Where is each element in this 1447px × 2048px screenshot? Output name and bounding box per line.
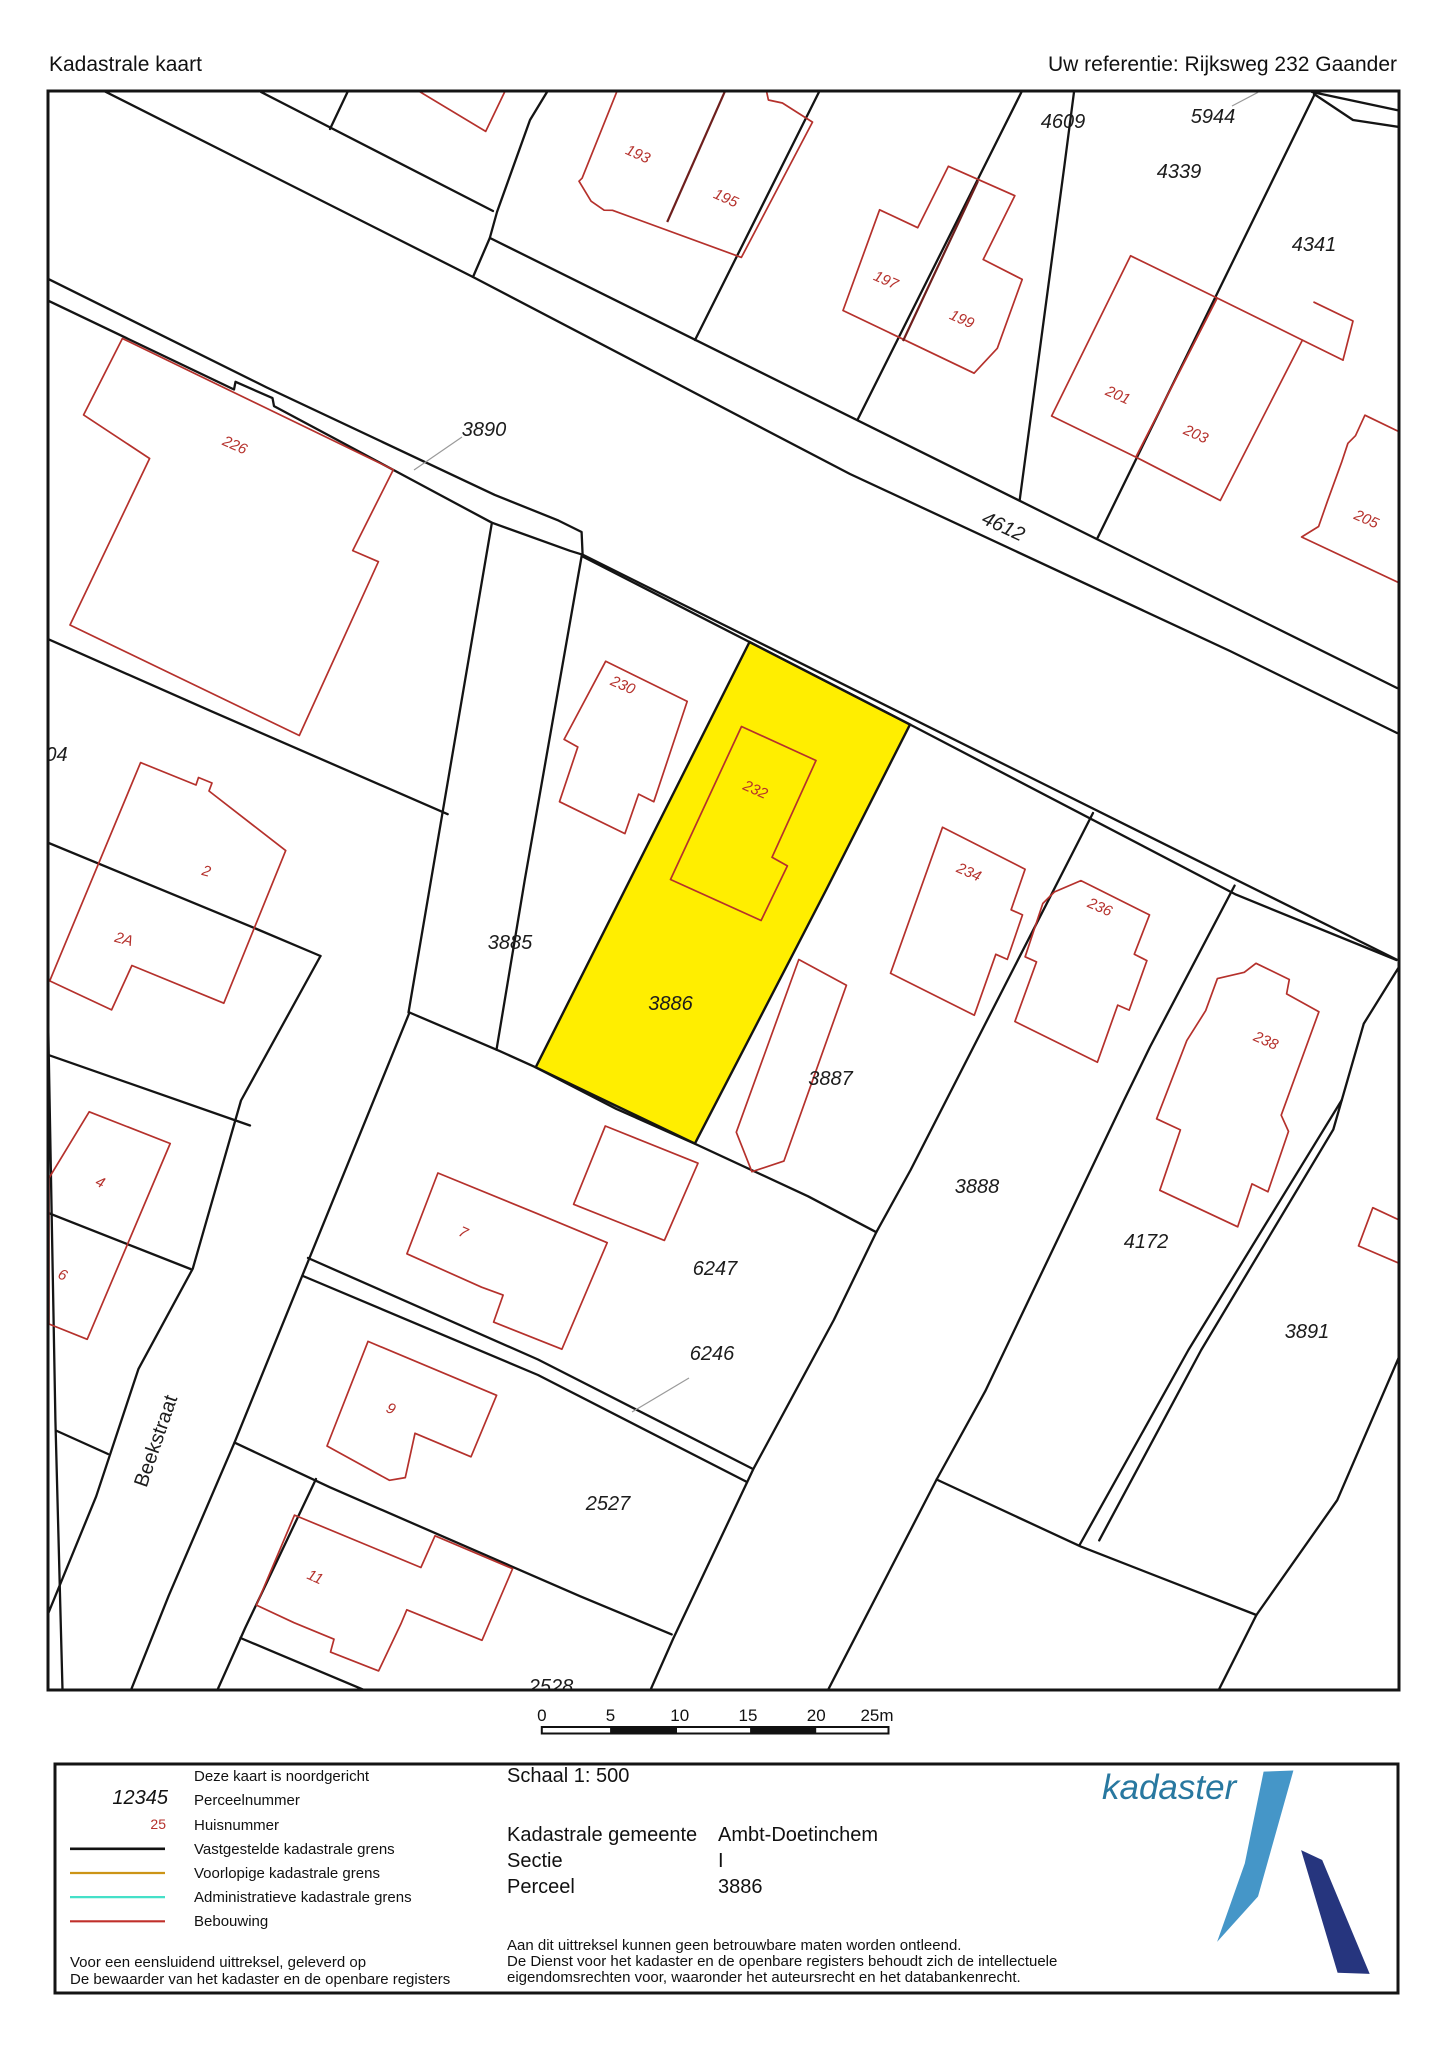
svg-text:12345: 12345 xyxy=(112,1787,168,1809)
svg-text:234: 234 xyxy=(953,859,984,885)
svg-text:203: 203 xyxy=(1180,421,1211,447)
svg-text:7: 7 xyxy=(456,1223,471,1242)
svg-text:3887: 3887 xyxy=(808,1068,853,1090)
svg-text:236: 236 xyxy=(1084,894,1115,920)
svg-text:9: 9 xyxy=(384,1399,399,1418)
svg-text:11: 11 xyxy=(304,1566,325,1588)
svg-text:238: 238 xyxy=(1250,1028,1281,1054)
svg-text:Kadastrale gemeente: Kadastrale gemeente xyxy=(507,1824,697,1846)
svg-text:Beekstraat: Beekstraat xyxy=(130,1392,182,1490)
svg-text:2: 2 xyxy=(199,862,213,881)
svg-text:Huisnummer: Huisnummer xyxy=(194,1817,279,1834)
svg-text:5: 5 xyxy=(606,1706,615,1725)
svg-text:4339: 4339 xyxy=(1157,161,1202,183)
svg-text:Administratieve kadastrale gre: Administratieve kadastrale grens xyxy=(194,1889,412,1906)
svg-text:I: I xyxy=(718,1850,724,1872)
svg-text:2527: 2527 xyxy=(585,1493,631,1515)
svg-text:Bebouwing: Bebouwing xyxy=(194,1913,268,1930)
svg-text:6: 6 xyxy=(55,1266,70,1285)
svg-text:704: 704 xyxy=(34,744,67,766)
svg-text:10: 10 xyxy=(670,1706,689,1725)
svg-text:15: 15 xyxy=(739,1706,758,1725)
svg-text:Ambt-Doetinchem: Ambt-Doetinchem xyxy=(718,1824,878,1846)
svg-text:Uw referentie: Rijksweg 232 Ga: Uw referentie: Rijksweg 232 Gaander xyxy=(1048,53,1397,76)
svg-text:kadaster: kadaster xyxy=(1102,1768,1238,1807)
svg-text:3891: 3891 xyxy=(1285,1321,1330,1343)
svg-text:De Dienst voor het kadaster en: De Dienst voor het kadaster en de openba… xyxy=(507,1953,1057,1970)
svg-text:Voor een eensluidend uittrekse: Voor een eensluidend uittreksel, gelever… xyxy=(70,1954,366,1971)
svg-text:20: 20 xyxy=(807,1706,826,1725)
svg-text:3886: 3886 xyxy=(648,993,693,1015)
svg-text:4609: 4609 xyxy=(1041,111,1086,133)
svg-text:Perceelnummer: Perceelnummer xyxy=(194,1792,300,1809)
svg-text:3890: 3890 xyxy=(462,419,507,441)
svg-text:3885: 3885 xyxy=(488,932,533,954)
svg-text:4612: 4612 xyxy=(978,507,1028,546)
svg-text:Vastgestelde kadastrale grens: Vastgestelde kadastrale grens xyxy=(194,1841,395,1858)
svg-text:2528: 2528 xyxy=(528,1676,574,1698)
svg-text:Sectie: Sectie xyxy=(507,1850,563,1872)
svg-text:205: 205 xyxy=(1350,506,1381,532)
svg-text:Aan dit uittreksel kunnen geen: Aan dit uittreksel kunnen geen betrouwba… xyxy=(507,1937,961,1954)
svg-text:eigendomsrechten voor, waarond: eigendomsrechten voor, waaronder het aut… xyxy=(507,1969,1021,1986)
svg-text:Deze kaart is noordgericht: Deze kaart is noordgericht xyxy=(194,1768,370,1785)
svg-text:193: 193 xyxy=(623,142,653,168)
svg-text:Kadastrale kaart: Kadastrale kaart xyxy=(49,53,202,76)
svg-text:3886: 3886 xyxy=(718,1876,763,1898)
svg-text:197: 197 xyxy=(871,268,901,294)
svg-text:25: 25 xyxy=(150,1816,166,1832)
svg-text:6247: 6247 xyxy=(693,1258,738,1280)
svg-text:2A: 2A xyxy=(112,929,135,950)
svg-text:De bewaarder van het kadaster: De bewaarder van het kadaster en de open… xyxy=(70,1971,450,1988)
svg-text:5944: 5944 xyxy=(1191,106,1236,128)
svg-text:6246: 6246 xyxy=(690,1343,735,1365)
svg-text:Voorlopige kadastrale grens: Voorlopige kadastrale grens xyxy=(194,1865,380,1882)
svg-text:Schaal 1: 500: Schaal 1: 500 xyxy=(507,1765,629,1787)
svg-text:0: 0 xyxy=(537,1706,546,1725)
svg-text:230: 230 xyxy=(607,672,638,698)
svg-text:4: 4 xyxy=(93,1173,108,1192)
svg-text:4341: 4341 xyxy=(1292,234,1337,256)
svg-text:195: 195 xyxy=(711,186,741,212)
svg-text:226: 226 xyxy=(219,432,250,458)
svg-text:3888: 3888 xyxy=(955,1176,1000,1198)
svg-text:Perceel: Perceel xyxy=(507,1876,575,1898)
svg-text:201: 201 xyxy=(1102,382,1133,408)
svg-text:25m: 25m xyxy=(860,1706,893,1725)
svg-text:199: 199 xyxy=(947,307,977,333)
svg-text:4172: 4172 xyxy=(1124,1231,1169,1253)
